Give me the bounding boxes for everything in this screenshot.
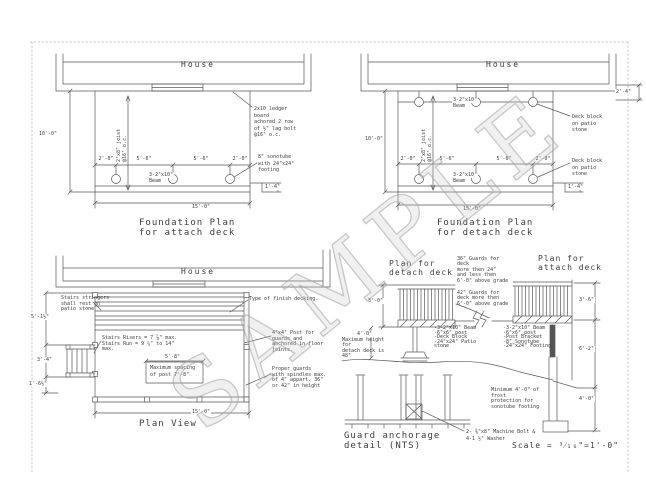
detach-post-dim: 2'-0" <box>399 156 417 162</box>
stringer-note-line: patio stone <box>61 306 94 312</box>
detach-joist-note-line2: @16" o.c. <box>427 135 433 162</box>
ledger-note-line: board <box>254 113 269 119</box>
frost-note-line: sonotube footing <box>491 404 539 410</box>
post-note-line: joints. <box>272 347 293 353</box>
planview-dim-width: 15'-0" <box>191 409 211 415</box>
deck-block-note-line: on patio <box>572 165 596 171</box>
guard-note-line: or 42" in height <box>272 383 320 389</box>
detach-dim-height: 10'-0" <box>364 136 384 142</box>
guard36-note-line: 6'-0" above grade <box>457 278 508 284</box>
detach-beam-top-label-line2: Beam <box>452 103 466 109</box>
attach-joist-note-line2: @16" o.c. <box>122 135 128 162</box>
planview-dim-left: 5'-1½" <box>30 314 50 320</box>
detach-parts-line: stone <box>434 343 449 349</box>
attach-dim-height: 10'-0" <box>38 131 58 137</box>
scale-note: Scale = ³⁄₁₆"=1'-0" <box>512 441 619 451</box>
sonotube-note-line: with 24"x24" <box>258 161 294 167</box>
anchorage-title-line2: detail (NTS) <box>344 441 421 452</box>
detach-post-dim: 5'-6" <box>495 156 513 162</box>
ledger-note-line: 2x10 ledger <box>254 106 287 112</box>
attach-dim-width: 15'-0" <box>191 204 211 210</box>
guard42-note-line: 6'-0" above grade <box>457 301 508 307</box>
elev-dim-rail-right: 3'-6" <box>578 297 595 303</box>
detach-house-label: House <box>486 60 520 70</box>
detach-dim-offset: 2'-4" <box>615 89 632 95</box>
attach-house-label: House <box>181 60 215 70</box>
detach-beam-bot-label-line2: Beam <box>452 178 466 184</box>
plan-view-title: Plan View <box>139 419 197 430</box>
elev-detach-title-line2: detach deck <box>389 268 453 278</box>
deck-block-note-line: Deck block <box>572 158 602 164</box>
deck-block-note-line: on patio <box>572 121 596 127</box>
sonotube-note-line: footing <box>258 167 279 173</box>
planview-dim-left: 3'-4" <box>36 357 53 363</box>
blueprint-page: House 10'-0" 2"x8" joist @16" o.c. 2'-0"… <box>0 0 646 497</box>
attach-post-dim: 2'-0" <box>231 156 249 162</box>
height-note-line: 48" <box>342 353 351 359</box>
attach-post-dim: 2'-0" <box>97 156 115 162</box>
elev-attach-title-line2: attach deck <box>538 263 602 273</box>
ledger-note-line: achored 2 row <box>254 119 293 125</box>
attach-post-dim: 5'-6" <box>135 156 153 162</box>
deck-block-note-line: Deck block <box>572 114 602 120</box>
deck-block-note-line: stone <box>572 171 587 177</box>
sonotube-note-line: 8" sonotube <box>258 154 291 160</box>
bolt-note-line: 4-1 ½" Washer <box>466 436 505 442</box>
elev-dim-rail: 3'-0" <box>367 298 384 304</box>
ledger-note-line: @16" o.c. <box>254 132 281 138</box>
attach-parts-line: -24"x24" Footing <box>503 343 551 349</box>
planview-house-label: House <box>181 267 215 277</box>
planview-dim-left: 1'-6½" <box>28 381 48 387</box>
detach-foundation-drawing <box>361 54 642 210</box>
elev-dim-mid-right: 6'-2" <box>578 346 595 352</box>
deck-block-note-line: stone <box>572 127 587 133</box>
attach-beam-label-line2: Beam <box>148 178 162 184</box>
attach-plan-title-line2: for attach deck <box>139 228 235 239</box>
bolt-note-line: 2- ⅜"x8" Machine Bolt & <box>466 429 535 435</box>
post-spacing-dim: 5'-8" <box>164 354 181 360</box>
post-spacing-note-line: Maximum spacing <box>150 365 195 371</box>
drawing-linework <box>0 0 646 497</box>
detach-post-dim: 5'-6" <box>438 156 456 162</box>
risers-note-line: max. <box>102 346 114 352</box>
ledger-note-line: of ½" lag bolt <box>254 126 296 132</box>
detach-post-dim: 2'-0" <box>534 156 552 162</box>
attach-dim-step: 1'-4" <box>264 184 281 190</box>
detach-dim-step: 1'-4" <box>567 184 584 190</box>
post-spacing-note-line: of post 7'-8" <box>150 372 189 378</box>
detach-dim-width: 15'-0" <box>462 206 482 212</box>
attach-post-dim: 5'-6" <box>192 156 210 162</box>
decking-note: Type of finish decking. <box>249 296 318 302</box>
detach-plan-title-line2: for detach deck <box>437 228 533 239</box>
elev-dim-frost-right: 4'-0" <box>578 396 595 402</box>
